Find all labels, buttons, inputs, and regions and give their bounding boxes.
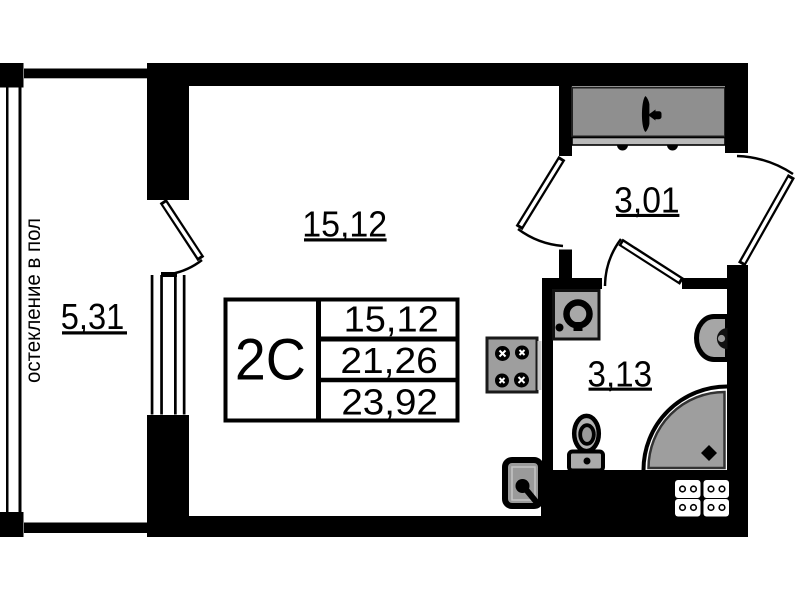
svg-text:15,12: 15,12 — [302, 203, 387, 244]
svg-text:23,92: 23,92 — [341, 382, 438, 423]
svg-text:остекление в пол: остекление в пол — [22, 218, 45, 383]
svg-text:15,12: 15,12 — [344, 299, 439, 340]
svg-text:21,26: 21,26 — [340, 340, 438, 381]
svg-text:5,31: 5,31 — [61, 296, 125, 337]
svg-text:2С: 2С — [235, 327, 306, 392]
